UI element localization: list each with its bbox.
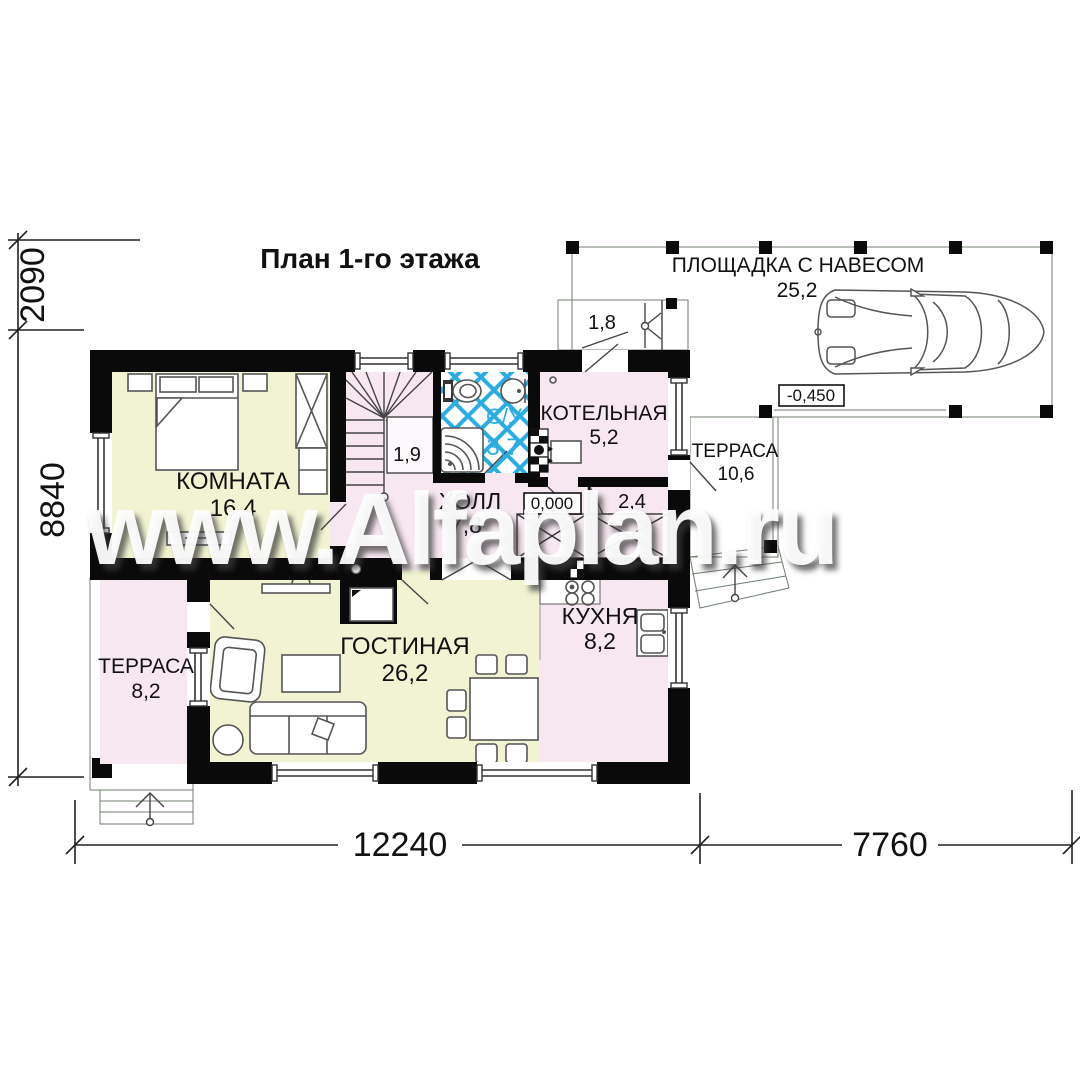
terrace-left-label: ТЕРРАСА xyxy=(98,655,194,678)
window xyxy=(668,608,690,688)
porch-gate-symbol xyxy=(642,300,663,350)
sofa xyxy=(250,702,366,754)
porch-area-leader-line xyxy=(582,332,628,348)
terrace-right-label: ТЕРРАСА xyxy=(692,441,779,462)
dim-left-main: 8840 xyxy=(34,462,72,538)
toilet xyxy=(443,380,481,402)
armchair xyxy=(210,636,266,703)
boiler-label: КОТЕЛЬНАЯ xyxy=(540,402,667,425)
dim-bottom-right: 7760 xyxy=(852,826,928,864)
nightstand xyxy=(243,374,267,391)
living-terrace-door-opening xyxy=(187,602,210,632)
stair-nook-area: 1,9 xyxy=(393,444,421,466)
terrace-left-steps xyxy=(100,790,193,824)
window xyxy=(355,350,413,372)
kitchen-area: 8,2 xyxy=(584,628,616,654)
dim-bottom-main: 12240 xyxy=(353,826,448,864)
living-label: ГОСТИНАЯ xyxy=(340,633,469,660)
bathroom-area: 3,7 xyxy=(486,434,519,461)
terrace-left-entry-arrow xyxy=(136,793,164,826)
coffee-table xyxy=(282,655,340,692)
nightstand xyxy=(128,374,152,391)
dimension-bottom xyxy=(66,790,1080,864)
plant xyxy=(213,725,243,755)
window xyxy=(445,350,523,372)
window xyxy=(477,762,597,784)
car-top-view xyxy=(815,289,1044,375)
boiler-area: 5,2 xyxy=(589,426,618,449)
canopy-label: ПЛОЩАДКА С НАВЕСОМ xyxy=(672,254,925,277)
kitchen-label: КУХНЯ xyxy=(562,603,639,629)
dim-left-top: 2090 xyxy=(14,247,52,323)
watermark: www.Alfaplan.ru xyxy=(86,478,986,580)
living-area: 26,2 xyxy=(382,660,429,687)
window xyxy=(668,378,690,455)
page-title: План 1-го этажа xyxy=(260,243,480,274)
terrace-left-area-value: 8,2 xyxy=(131,680,160,703)
level-yard: -0,450 xyxy=(787,386,835,405)
kitchen-sink xyxy=(637,610,668,656)
porch-area-value: 1,8 xyxy=(588,312,616,334)
bathroom-label: С/У xyxy=(486,404,523,429)
shower xyxy=(441,428,483,472)
window xyxy=(272,762,378,784)
washbasin xyxy=(501,379,525,403)
floor-plan-page: КОМНАТА 16,4 ГОСТИНАЯ 26,2 ТЕРРАСА 8,2 К… xyxy=(0,0,1080,1080)
canopy-area-value: 25,2 xyxy=(777,279,818,302)
boiler-unit xyxy=(551,441,581,463)
